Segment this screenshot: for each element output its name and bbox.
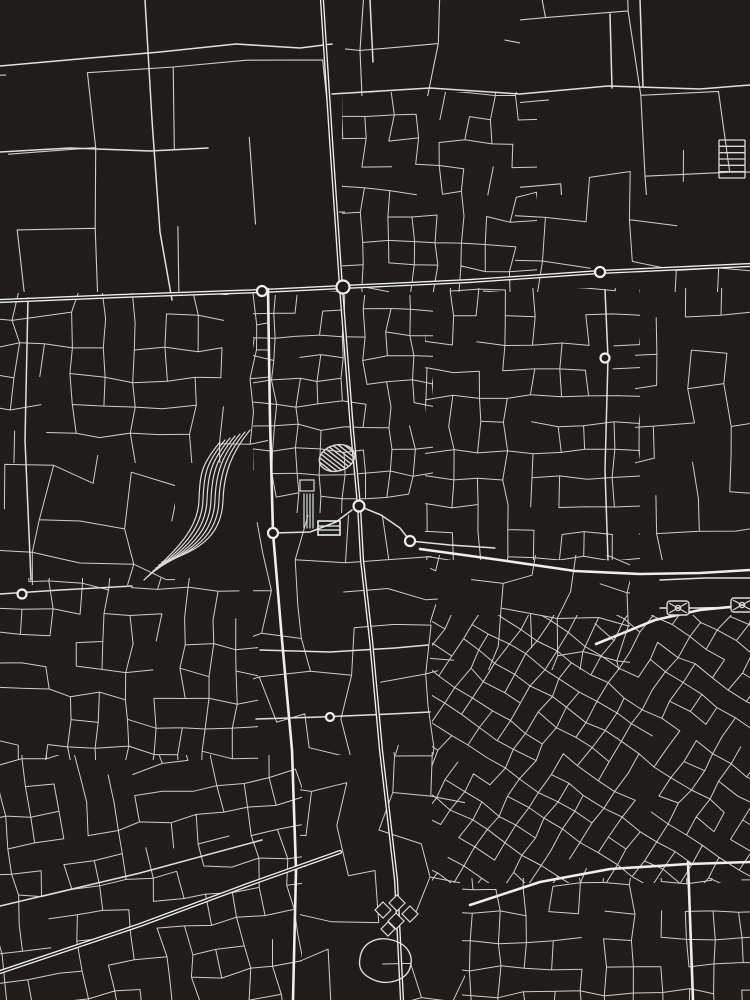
city-map-poster [0, 0, 750, 1000]
roundabout [601, 354, 610, 363]
roundabout [595, 267, 605, 277]
map-canvas [0, 0, 750, 1000]
roundabout [18, 590, 27, 599]
roundabout [326, 713, 334, 721]
roundabout [268, 528, 278, 538]
ladder-structure [719, 140, 745, 178]
roundabout [354, 501, 365, 512]
roundabout [337, 281, 350, 294]
roundabout [405, 536, 415, 546]
roundabout [257, 286, 267, 296]
ladder-lines [719, 140, 745, 178]
